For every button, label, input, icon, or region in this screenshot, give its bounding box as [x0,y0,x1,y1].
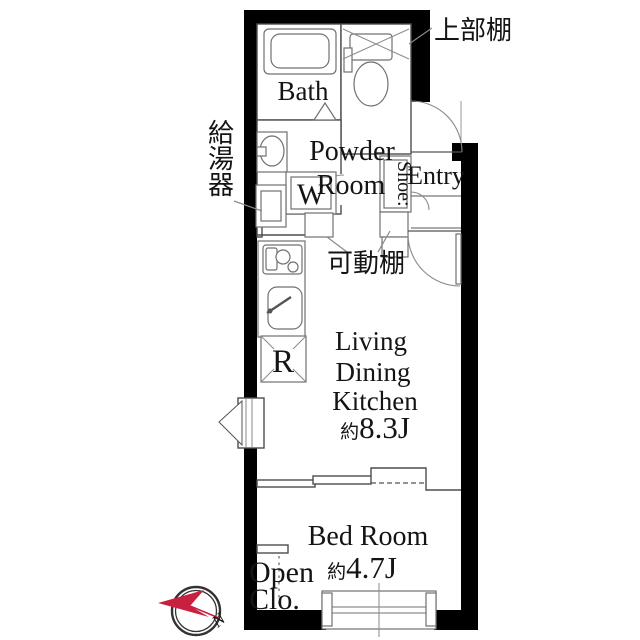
toilet-paper-holder [344,48,352,72]
water-heater-inner [261,191,281,221]
toilet-tank [350,34,392,60]
shoe-cabinet-label: Shoe: [393,161,415,207]
ldk-door [408,231,461,286]
ldk-side-window [219,398,264,448]
compass: N [158,587,230,635]
open-closet-label-2: Clo. [249,583,300,616]
sink-faucet-base [268,309,273,314]
ldk-door-arc [408,234,460,286]
movable-shelf-label: 可動棚 [327,249,405,278]
water-heater-label: 給湯器 [205,119,234,197]
upper-shelf-label: 上部棚 [434,16,512,45]
stove-burner-large [276,250,290,264]
bedroom-window-cap-left [322,593,332,626]
bedroom-area-label: 約4.7J [327,550,397,585]
powder-room-label-1: Powder [309,136,395,167]
bath-label: Bath [278,76,329,106]
stove-side-panel [266,248,277,270]
floor-plan: N Bath Powder Room Entry Shoe: W R 上部棚 給… [0,0,640,640]
bathtub-inner [271,34,329,68]
ldk-door-leaf [456,234,461,284]
washing-machine-label: W [297,178,326,211]
hall-shelf-right-upper [380,212,408,237]
partition-wall-left [257,480,315,487]
hall-shelf-left [305,213,333,237]
bedroom-label: Bed Room [308,521,429,552]
bedroom-window-cap-right [426,593,436,626]
floor-plan-drawing: N Bath Powder Room Entry Shoe: W R 上部棚 給… [0,0,640,640]
washbasin-tap [257,147,266,156]
partition [257,468,461,490]
stove-burner-small [288,262,298,272]
wall-right [461,143,478,630]
powder-room-label-2: Room [317,170,386,201]
ldk-label-2: Dining [335,357,410,387]
closet-wall-stub [257,545,288,553]
sliding-door-panel [313,476,371,484]
side-window-swing-marker [219,401,242,445]
refrigerator-label: R [272,344,294,380]
compass-north-label: N [207,608,230,632]
toilet-bowl [354,62,388,106]
partition-step [371,468,461,490]
ldk-label-1: Living [335,326,407,356]
